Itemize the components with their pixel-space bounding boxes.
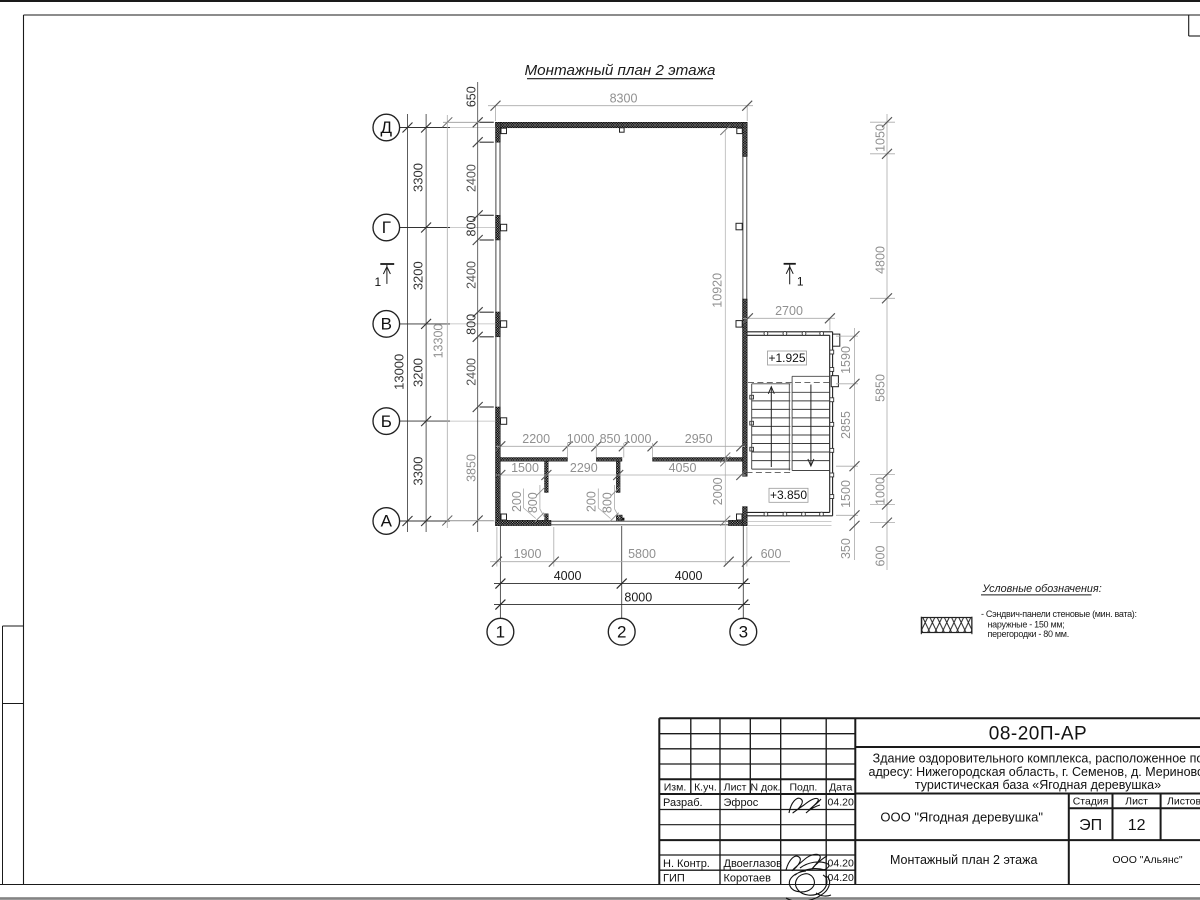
svg-text:1590: 1590 [839,346,853,374]
svg-text:2000: 2000 [711,477,725,505]
svg-text:2: 2 [617,622,626,641]
svg-text:Г: Г [382,218,391,237]
svg-text:ООО "Альянс": ООО "Альянс" [1112,854,1182,866]
svg-text:+1.925: +1.925 [768,351,805,365]
svg-text:04.20: 04.20 [828,872,854,884]
svg-text:5850: 5850 [874,374,888,402]
svg-text:13000: 13000 [392,354,407,390]
svg-text:N док.: N док. [751,781,781,793]
svg-text:Подп.: Подп. [789,781,817,793]
svg-text:04.20: 04.20 [828,858,854,870]
svg-text:Лист: Лист [724,781,747,793]
svg-text:350: 350 [839,538,853,559]
svg-text:Дата: Дата [829,781,852,793]
svg-text:2400: 2400 [464,261,478,289]
svg-text:800: 800 [601,492,615,513]
svg-text:4050: 4050 [669,461,697,475]
svg-text:В: В [381,315,392,334]
svg-text:3850: 3850 [464,454,478,482]
svg-text:2855: 2855 [839,411,853,439]
svg-text:1: 1 [797,275,804,289]
svg-text:1050: 1050 [874,124,888,152]
svg-text:адресу: Нижегородская область,: адресу: Нижегородская область, г. Семено… [869,765,1200,779]
svg-text:2290: 2290 [570,461,598,475]
svg-text:850: 850 [600,432,621,446]
svg-text:2200: 2200 [522,432,550,446]
svg-text:Монтажный план 2 этажа: Монтажный план 2 этажа [525,62,716,79]
svg-text:наружные - 150 мм;: наружные - 150 мм; [988,619,1065,629]
svg-text:Монтажный план 2 этажа: Монтажный план 2 этажа [890,853,1037,867]
svg-text:4000: 4000 [554,569,582,583]
svg-text:3300: 3300 [410,457,425,486]
svg-text:1000: 1000 [624,432,652,446]
svg-text:10920: 10920 [711,273,725,308]
svg-text:1000: 1000 [567,432,595,446]
svg-text:ЭП: ЭП [1079,817,1102,834]
svg-text:2950: 2950 [685,432,713,446]
svg-text:Н. Контр.: Н. Контр. [663,858,710,870]
svg-text:1: 1 [374,275,381,289]
svg-text:1000: 1000 [874,477,888,505]
svg-text:Эфрос: Эфрос [724,797,759,809]
svg-text:Изм.: Изм. [664,781,687,793]
svg-text:1500: 1500 [839,480,853,508]
svg-text:+3.850: +3.850 [770,488,807,502]
svg-text:2700: 2700 [775,304,803,318]
svg-text:3300: 3300 [410,163,425,192]
svg-text:2400: 2400 [464,358,478,386]
svg-text:Условные обозначения:: Условные обозначения: [982,583,1102,595]
svg-text:Стадия: Стадия [1073,796,1109,808]
svg-text:Двоеглазов: Двоеглазов [724,858,783,870]
svg-text:Здание оздоровительного компле: Здание оздоровительного комплекса, распо… [873,752,1200,766]
svg-text:3200: 3200 [410,358,425,387]
svg-text:Д: Д [381,118,393,137]
svg-text:1500: 1500 [511,461,539,475]
svg-text:ООО "Ягодная деревушка": ООО "Ягодная деревушка" [880,810,1043,825]
svg-text:800: 800 [464,314,478,335]
svg-text:4800: 4800 [874,246,888,274]
svg-text:туристическая база «Ягодная де: туристическая база «Ягодная деревушка» [915,778,1161,792]
svg-text:600: 600 [761,547,782,561]
svg-text:8000: 8000 [624,591,652,605]
svg-text:13300: 13300 [432,324,446,359]
svg-text:- Сэндвич-панели стеновые (мин: - Сэндвич-панели стеновые (мин. вата): [981,609,1137,619]
svg-text:Разраб.: Разраб. [663,797,703,809]
svg-text:5800: 5800 [628,547,656,561]
svg-text:Б: Б [381,412,392,431]
svg-text:1: 1 [496,622,505,641]
svg-text:ГИП: ГИП [663,872,685,884]
svg-text:3: 3 [739,622,748,641]
svg-text:12: 12 [1128,817,1146,834]
svg-text:650: 650 [464,86,478,107]
svg-text:2400: 2400 [464,164,478,192]
svg-text:Лист: Лист [1125,796,1148,808]
svg-text:8300: 8300 [610,92,638,106]
svg-text:4000: 4000 [675,569,703,583]
svg-text:3200: 3200 [410,261,425,290]
svg-text:800: 800 [464,216,478,237]
svg-text:800: 800 [526,492,540,513]
svg-text:К.уч.: К.уч. [694,781,717,793]
svg-text:Листов: Листов [1167,796,1200,808]
svg-text:перегородки - 80 мм.: перегородки - 80 мм. [988,629,1069,639]
svg-text:04.20: 04.20 [828,797,854,809]
svg-text:Коротаев: Коротаев [724,872,772,884]
svg-text:200: 200 [585,491,599,512]
svg-text:200: 200 [510,491,524,512]
svg-text:А: А [381,512,393,531]
svg-text:08-20П-АР: 08-20П-АР [989,724,1087,745]
svg-text:600: 600 [874,546,888,567]
svg-text:1900: 1900 [514,547,542,561]
